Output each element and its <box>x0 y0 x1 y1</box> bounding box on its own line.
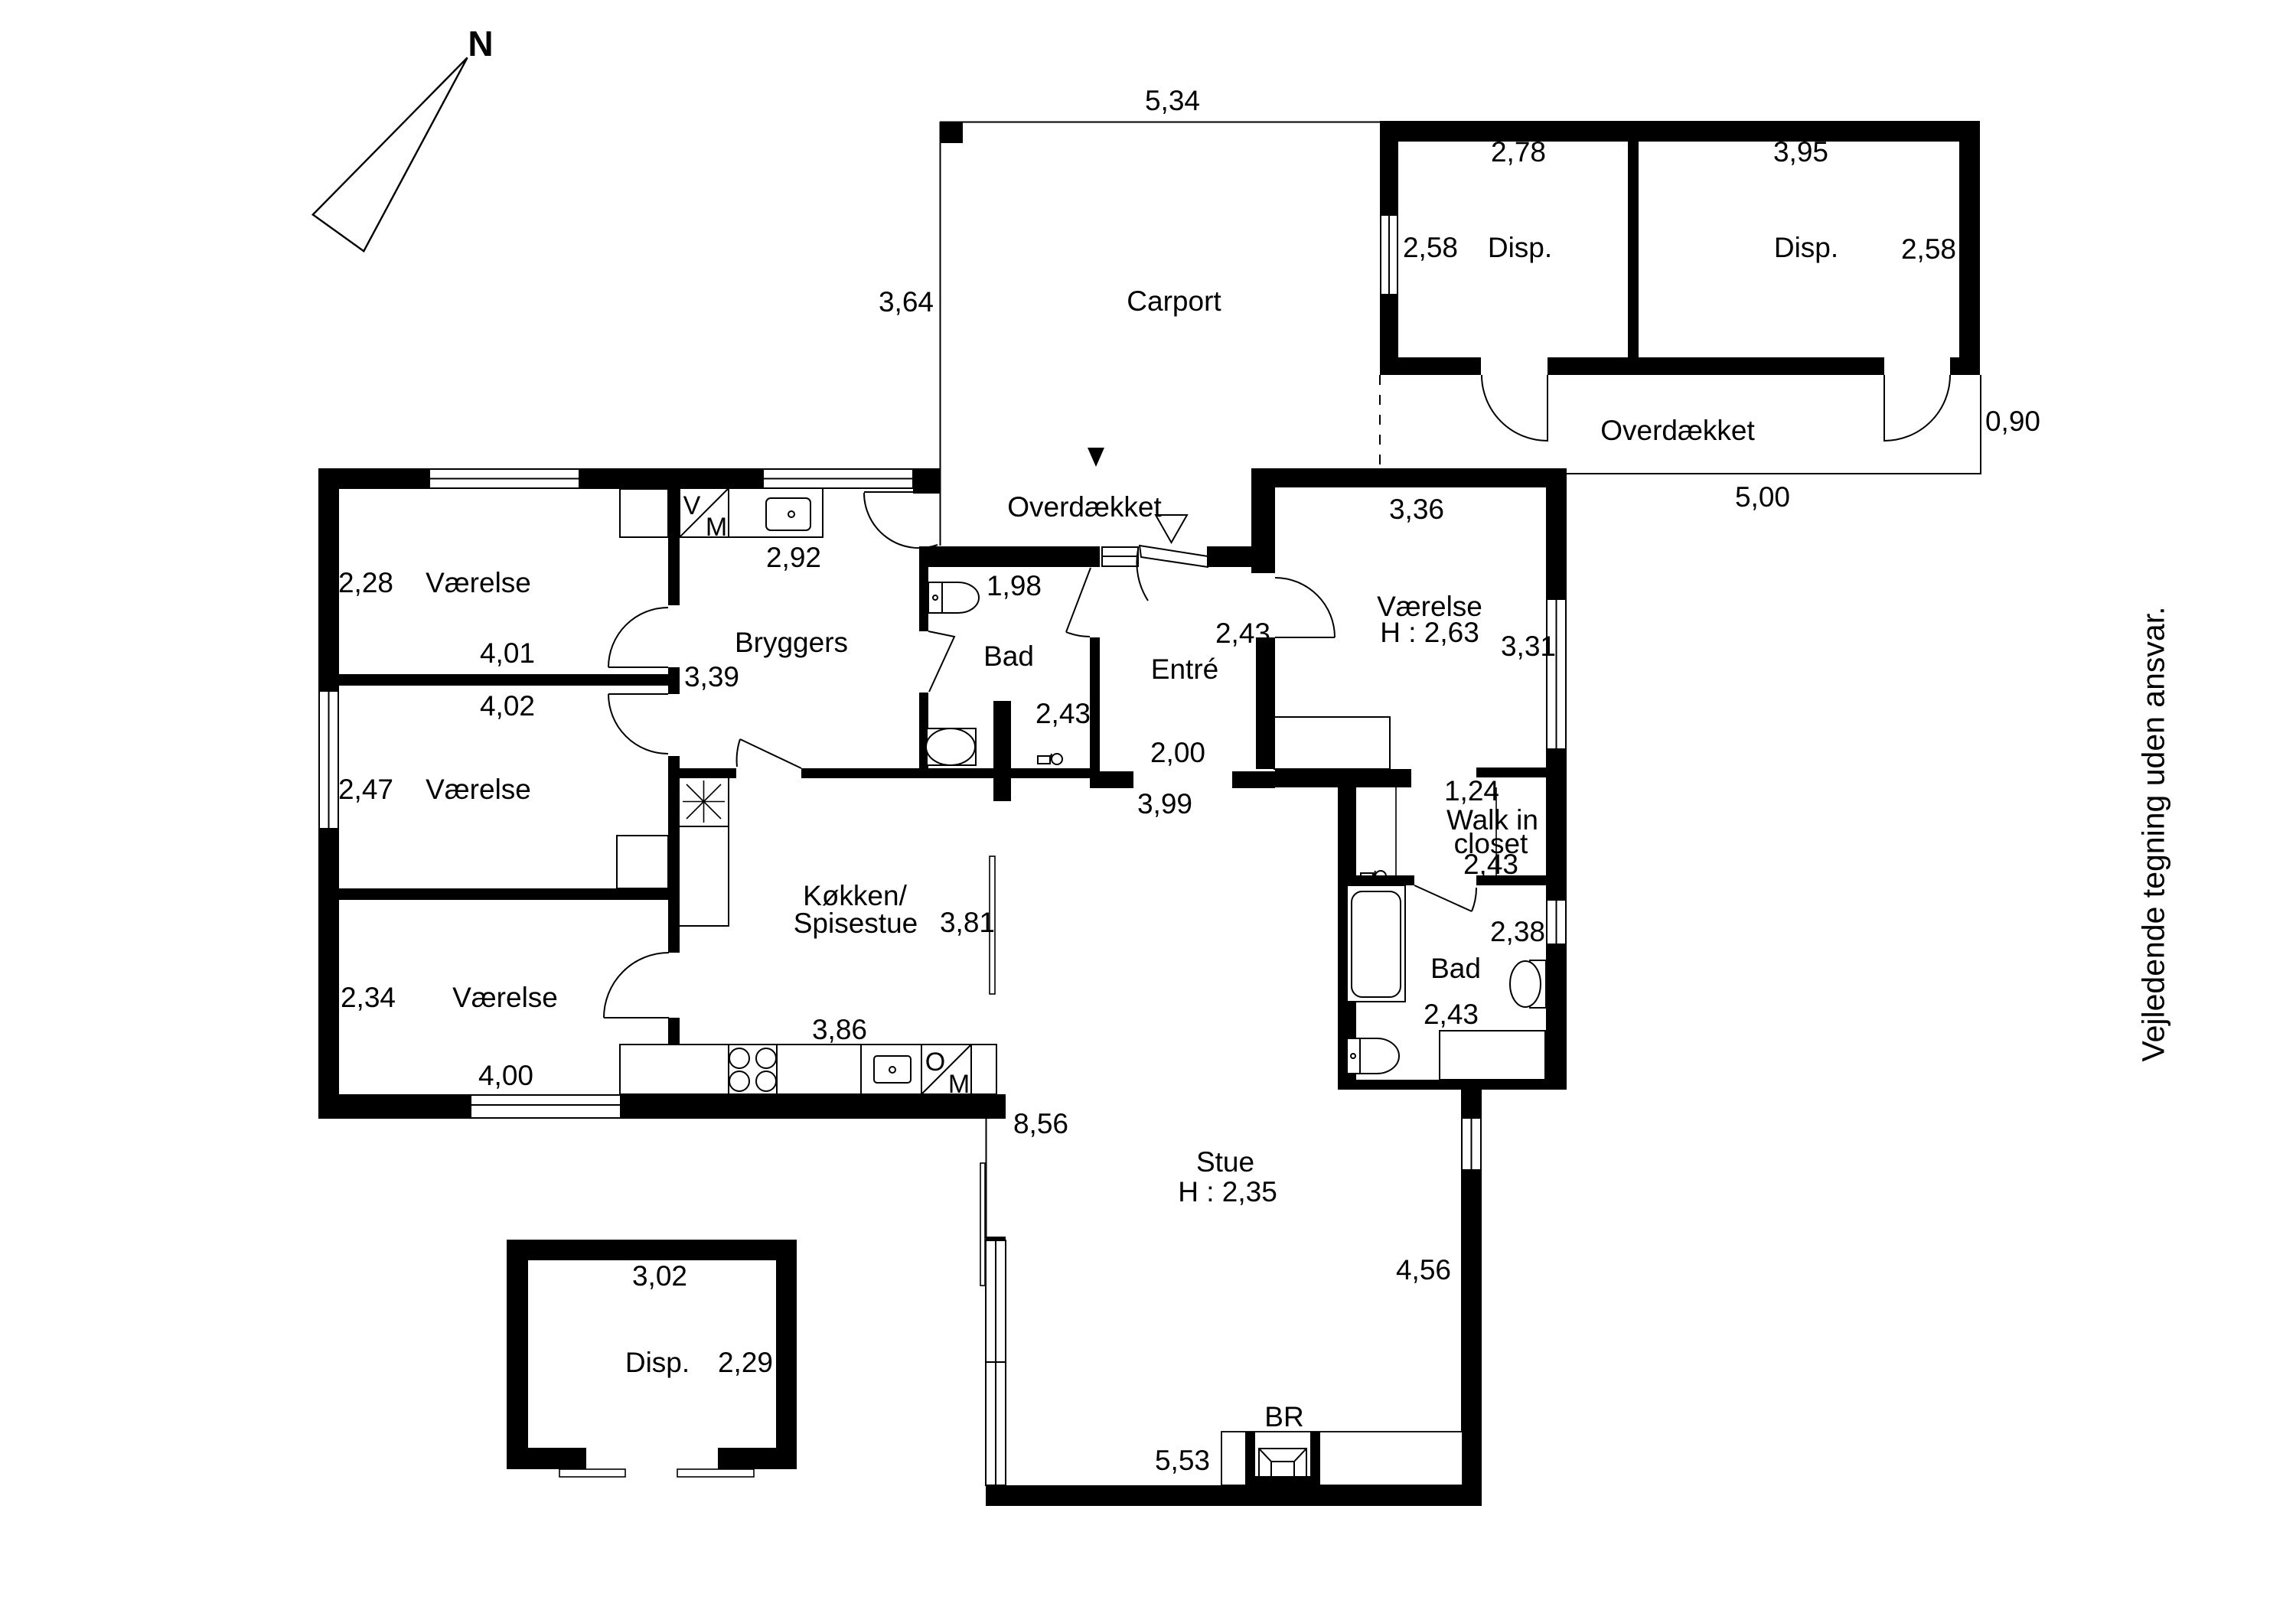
svg-text:Disp.: Disp. <box>1774 232 1838 263</box>
svg-text:4,56: 4,56 <box>1396 1254 1451 1286</box>
svg-text:Bad: Bad <box>1430 953 1481 984</box>
svg-text:Carport: Carport <box>1127 285 1221 317</box>
svg-text:3,81: 3,81 <box>940 907 995 938</box>
svg-text:5,53: 5,53 <box>1155 1445 1210 1476</box>
svg-text:1,98: 1,98 <box>987 570 1042 601</box>
svg-text:2,58: 2,58 <box>1901 233 1956 265</box>
svg-text:Disp.: Disp. <box>1488 232 1552 263</box>
svg-text:Overdækket: Overdækket <box>1007 491 1162 523</box>
svg-text:2,43: 2,43 <box>1215 618 1270 649</box>
svg-text:M: M <box>948 1070 970 1099</box>
svg-text:3,31: 3,31 <box>1501 631 1556 662</box>
svg-text:2,47: 2,47 <box>338 774 393 805</box>
svg-text:2,58: 2,58 <box>1403 232 1458 263</box>
svg-text:N: N <box>468 24 493 64</box>
svg-text:Disp.: Disp. <box>625 1347 690 1378</box>
svg-text:Køkken/: Køkken/ <box>803 880 907 911</box>
svg-text:4,00: 4,00 <box>478 1060 533 1091</box>
svg-text:3,64: 3,64 <box>879 286 934 318</box>
svg-text:2,38: 2,38 <box>1490 916 1545 947</box>
svg-text:2,28: 2,28 <box>338 567 393 598</box>
svg-text:4,02: 4,02 <box>480 690 535 722</box>
svg-text:2,29: 2,29 <box>718 1347 773 1378</box>
svg-text:3,36: 3,36 <box>1389 494 1444 525</box>
svg-text:H : 2,35: H : 2,35 <box>1178 1176 1277 1207</box>
svg-text:Entré: Entré <box>1151 653 1218 685</box>
svg-text:0,90: 0,90 <box>1985 406 2040 437</box>
svg-text:2,43: 2,43 <box>1424 999 1479 1030</box>
svg-text:O: O <box>925 1048 945 1077</box>
svg-text:5,34: 5,34 <box>1145 85 1200 116</box>
svg-text:3,39: 3,39 <box>684 661 739 693</box>
svg-text:1,24: 1,24 <box>1444 775 1499 807</box>
svg-text:2,92: 2,92 <box>766 542 821 573</box>
svg-text:3,02: 3,02 <box>632 1260 687 1292</box>
svg-text:3,99: 3,99 <box>1137 788 1192 820</box>
svg-text:2,78: 2,78 <box>1491 136 1546 168</box>
svg-text:5,00: 5,00 <box>1735 481 1790 513</box>
svg-text:Stue: Stue <box>1196 1146 1254 1178</box>
svg-text:V: V <box>683 491 701 520</box>
svg-text:4,01: 4,01 <box>480 637 535 669</box>
svg-text:H : 2,63: H : 2,63 <box>1380 617 1479 648</box>
svg-text:2,43: 2,43 <box>1035 698 1091 729</box>
svg-text:8,56: 8,56 <box>1013 1108 1068 1139</box>
svg-text:BR: BR <box>1264 1401 1303 1432</box>
svg-text:Vejledende tegning uden ansvar: Vejledende tegning uden ansvar. <box>2136 606 2171 1061</box>
svg-text:M: M <box>706 513 727 542</box>
svg-text:Spisestue: Spisestue <box>794 908 918 939</box>
svg-text:3,95: 3,95 <box>1773 136 1828 168</box>
svg-text:Værelse: Værelse <box>426 567 531 598</box>
svg-text:3,86: 3,86 <box>812 1014 867 1045</box>
svg-text:2,43: 2,43 <box>1463 849 1518 880</box>
svg-text:Bryggers: Bryggers <box>735 627 848 658</box>
svg-text:Værelse: Værelse <box>452 982 558 1013</box>
svg-text:Bad: Bad <box>983 640 1034 672</box>
svg-text:2,00: 2,00 <box>1150 737 1205 768</box>
svg-text:Værelse: Værelse <box>426 774 531 805</box>
svg-text:2,34: 2,34 <box>341 982 396 1013</box>
svg-text:Overdækket: Overdækket <box>1600 415 1755 446</box>
